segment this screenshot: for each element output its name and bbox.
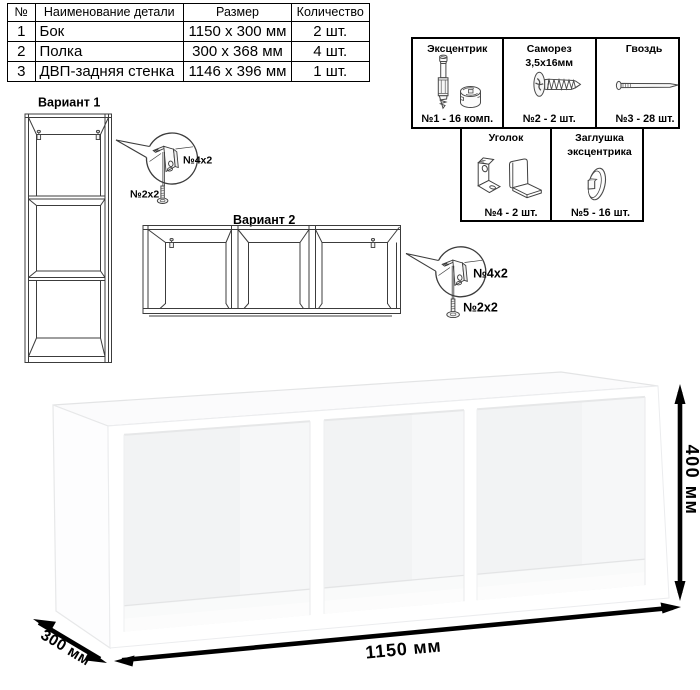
svg-text:№2х2: №2х2 [463,301,498,315]
svg-text:400 мм: 400 мм [682,445,700,516]
svg-text:№2х2: №2х2 [130,189,159,201]
svg-text:Вариант 2: Вариант 2 [233,213,295,227]
svg-text:№4х2: №4х2 [473,267,508,281]
svg-text:№4х2: №4х2 [183,155,212,167]
svg-text:Вариант 1: Вариант 1 [38,96,100,110]
svg-text:1150 мм: 1150 мм [365,635,443,662]
